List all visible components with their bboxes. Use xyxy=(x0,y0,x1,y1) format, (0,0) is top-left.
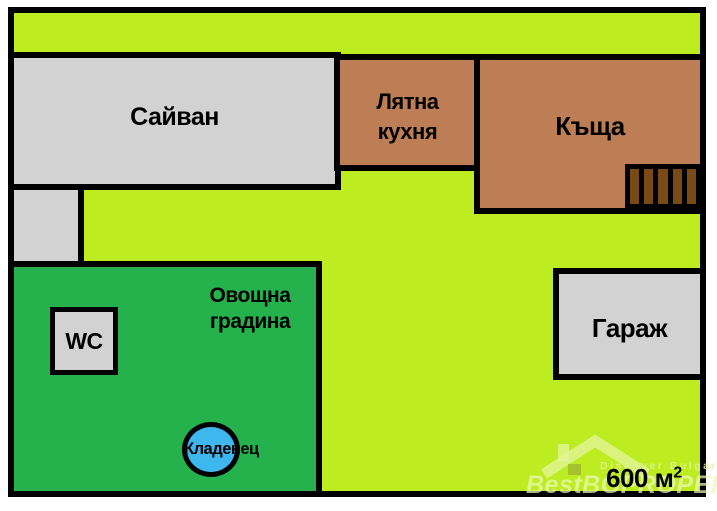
building-sayvan-label: Сайван xyxy=(130,103,219,132)
orchard-label-line2: градина xyxy=(210,310,290,333)
plot-area-superscript: 2 xyxy=(673,464,681,481)
house-stairs-hatching xyxy=(625,164,701,209)
stairs-bar xyxy=(687,169,696,204)
well-label: Кладенец xyxy=(184,440,259,459)
wc-hut: WC xyxy=(50,307,118,375)
stairs-bar xyxy=(644,169,653,204)
orchard-label-line1: Овощна xyxy=(210,284,291,307)
summer-kitchen-label-line1: Лятна xyxy=(376,89,438,114)
stairs-bar xyxy=(673,169,682,204)
plot-plan-canvas: Сайван Лятна кухня Къща Овощна градина W… xyxy=(0,0,717,511)
wc-label: WC xyxy=(65,328,102,355)
orchard-label: Овощна градина xyxy=(200,283,300,335)
stairs-bar xyxy=(630,169,639,204)
building-garage-label: Гараж xyxy=(592,313,667,344)
plot-area-label: 600 м2 xyxy=(606,463,682,494)
building-garage: Гараж xyxy=(553,268,706,380)
summer-kitchen-label-line2: кухня xyxy=(378,119,437,144)
stairs-bar xyxy=(658,169,667,204)
building-summer-kitchen: Лятна кухня xyxy=(334,54,481,171)
plot-area-value: 600 м xyxy=(606,463,673,493)
building-sayvan: Сайван xyxy=(8,52,341,190)
building-small-outbuilding xyxy=(8,184,84,267)
building-house-label: Къща xyxy=(555,111,625,142)
